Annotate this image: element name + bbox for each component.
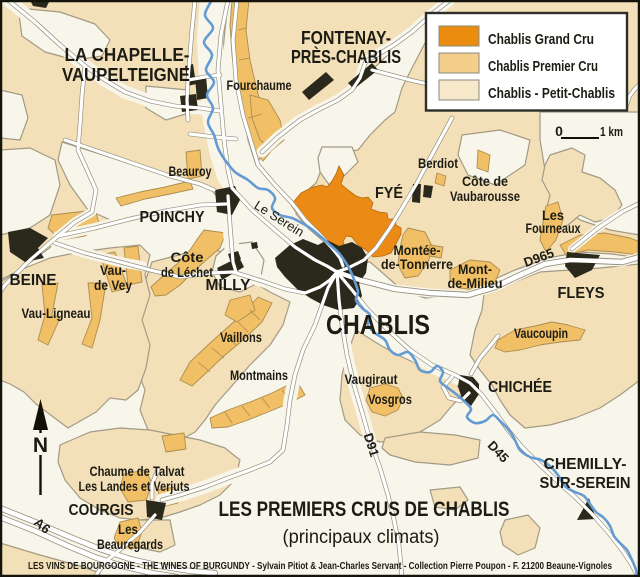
svg-text:Chablis Grand Cru: Chablis Grand Cru xyxy=(488,32,594,48)
svg-text:Chablis Premier Cru: Chablis Premier Cru xyxy=(488,59,598,75)
svg-text:Vaillons: Vaillons xyxy=(220,330,262,345)
svg-text:Fourneaux: Fourneaux xyxy=(526,221,581,236)
svg-text:FLEYS: FLEYS xyxy=(558,285,605,302)
svg-text:0: 0 xyxy=(555,123,563,139)
svg-text:Berdiot: Berdiot xyxy=(418,156,458,171)
svg-text:Vau-: Vau- xyxy=(100,263,126,278)
svg-text:CHEMILLY-: CHEMILLY- xyxy=(544,456,627,473)
svg-text:FYÉ: FYÉ xyxy=(375,183,403,202)
svg-text:Côte de: Côte de xyxy=(462,174,508,189)
svg-text:COURGIS: COURGIS xyxy=(69,502,134,519)
svg-text:Chaume de Talvat: Chaume de Talvat xyxy=(90,464,185,479)
svg-text:N: N xyxy=(33,434,48,457)
svg-text:FONTENAY-: FONTENAY- xyxy=(301,28,391,48)
svg-text:BEINE: BEINE xyxy=(10,272,57,289)
svg-text:Mont-: Mont- xyxy=(458,262,492,277)
svg-text:POINCHY: POINCHY xyxy=(140,209,205,226)
svg-text:Côte: Côte xyxy=(171,250,205,265)
svg-text:de Vey: de Vey xyxy=(94,278,132,293)
svg-text:1 km: 1 km xyxy=(600,124,623,139)
svg-text:LES VINS DE BOURGOGNE - THE WI: LES VINS DE BOURGOGNE - THE WINES OF BUR… xyxy=(28,561,612,572)
svg-text:Beauregards: Beauregards xyxy=(97,537,163,552)
svg-text:Chablis - Petit-Chablis: Chablis - Petit-Chablis xyxy=(488,86,615,102)
svg-text:VAUPELTEIGNE: VAUPELTEIGNE xyxy=(62,65,190,85)
svg-text:MILLY: MILLY xyxy=(206,277,251,294)
svg-text:Montée-: Montée- xyxy=(394,243,441,258)
svg-text:LES PREMIERS CRUS DE CHABLIS: LES PREMIERS CRUS DE CHABLIS xyxy=(219,498,510,521)
svg-text:(principaux climats): (principaux climats) xyxy=(283,527,440,548)
svg-text:Vau-Ligneau: Vau-Ligneau xyxy=(22,306,91,321)
svg-text:Vaubarousse: Vaubarousse xyxy=(450,189,520,204)
svg-text:Beauroy: Beauroy xyxy=(169,164,212,179)
svg-text:Fourchaume: Fourchaume xyxy=(227,78,292,93)
svg-text:de-Milieu: de-Milieu xyxy=(448,276,503,291)
svg-text:CHICHÉE: CHICHÉE xyxy=(488,377,552,396)
svg-text:SUR-SEREIN: SUR-SEREIN xyxy=(540,475,631,492)
svg-text:CHABLIS: CHABLIS xyxy=(326,309,430,340)
svg-text:Les Landes et Verjuts: Les Landes et Verjuts xyxy=(79,479,190,494)
svg-text:LA CHAPELLE-: LA CHAPELLE- xyxy=(65,45,190,65)
svg-text:Les: Les xyxy=(118,522,138,537)
svg-text:Vaugiraut: Vaugiraut xyxy=(345,372,398,387)
svg-text:Montmains: Montmains xyxy=(230,368,288,383)
svg-text:de-Tonnerre: de-Tonnerre xyxy=(381,257,453,272)
svg-text:Vaucoupin: Vaucoupin xyxy=(514,326,568,341)
svg-text:PRÈS-CHABLIS: PRÈS-CHABLIS xyxy=(291,46,401,67)
svg-text:Vosgros: Vosgros xyxy=(368,392,412,407)
